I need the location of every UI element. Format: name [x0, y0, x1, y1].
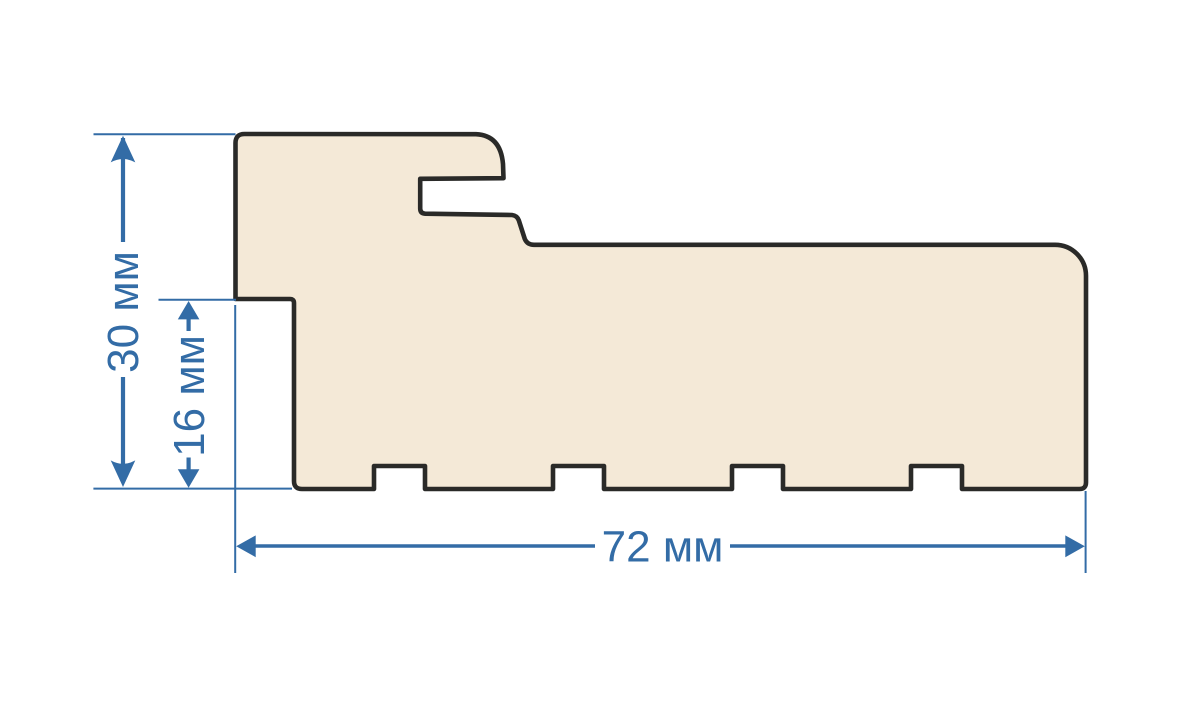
svg-text:72 мм: 72 мм — [602, 522, 724, 571]
svg-text:30 мм: 30 мм — [99, 251, 148, 373]
svg-text:16 мм: 16 мм — [165, 335, 214, 457]
